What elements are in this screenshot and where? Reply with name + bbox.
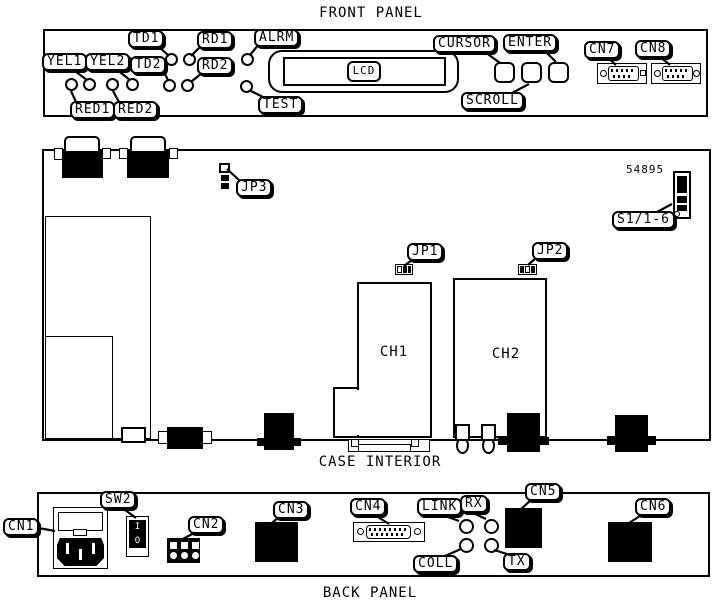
iec-prong-right <box>92 543 95 554</box>
cn2-pin-sq-3 <box>192 542 199 549</box>
cn8-screw-right <box>693 70 700 77</box>
rocker-switch: I O <box>129 520 146 548</box>
red1-led <box>65 78 78 91</box>
capacitor-1-body <box>455 424 470 441</box>
yel1-label: YEL1 <box>42 53 87 71</box>
rd2-label: RD2 <box>197 57 233 75</box>
cn2-pin-sq-1 <box>170 542 177 549</box>
cn2-pin-rd-2 <box>181 552 188 559</box>
cn3-label: CN3 <box>273 501 309 519</box>
ch1-board <box>357 282 432 438</box>
yel2-label: YEL2 <box>85 53 130 71</box>
rd2-led <box>181 79 194 92</box>
cn2-pin-rd-1 <box>170 552 177 559</box>
case-interior-title: CASE INTERIOR <box>280 454 480 470</box>
cn4-pins-bottom <box>371 533 406 536</box>
iec-prong-left <box>66 543 69 554</box>
rocker-off-marking: O <box>135 537 140 546</box>
cn1-label: CN1 <box>3 518 39 536</box>
bottom-connector-small <box>121 427 146 443</box>
cn7-pins-top <box>611 69 636 72</box>
td1-label: TD1 <box>128 30 164 48</box>
bottom-connector-4-body <box>615 415 648 452</box>
cn2-label: CN2 <box>188 516 224 534</box>
capacitor-2-body <box>481 424 496 441</box>
cn8-label: CN8 <box>635 40 671 58</box>
cn5-label: CN5 <box>525 483 561 501</box>
cn7-pins-bottom <box>613 75 633 78</box>
cn8-pins-bottom <box>667 75 687 78</box>
cn2-pin-sq-2 <box>181 542 188 549</box>
red1-label: RED1 <box>70 101 115 119</box>
yel2-led <box>126 78 139 91</box>
jp1-jumper <box>395 264 413 275</box>
lcd-badge: LCD <box>347 61 381 82</box>
sw2-label: SW2 <box>100 491 136 509</box>
power-inner-box <box>45 336 113 439</box>
scroll-button <box>521 62 542 83</box>
td2-led <box>163 79 176 92</box>
yel1-led <box>83 78 96 91</box>
jp1-label: JP1 <box>407 243 443 261</box>
link-led <box>459 519 474 534</box>
ch1-text: CH1 <box>374 344 414 360</box>
jp3-jumper-cap <box>219 163 230 173</box>
cn2-pin-rd-3 <box>192 552 199 559</box>
red2-led <box>106 78 119 91</box>
ch1-edge-connector-inner <box>358 444 411 452</box>
cursor-label: CURSOR <box>433 35 496 53</box>
bottom-connector-3-tab-right <box>540 437 549 445</box>
jp2-cell-closed2 <box>531 266 535 273</box>
front-panel-title: FRONT PANEL <box>271 5 471 21</box>
cn6-label: CN6 <box>635 498 671 516</box>
jp2-cell-open <box>525 266 531 273</box>
ch1-seam-patch <box>356 390 362 435</box>
back-panel-title: BACK PANEL <box>270 585 470 601</box>
dip-switch-label: S1/1-6 <box>612 211 675 229</box>
test-label: TEST <box>258 96 303 114</box>
scroll-label: SCROLL <box>461 92 524 110</box>
tx-led <box>484 538 499 553</box>
bottom-connector-4-tab-right <box>648 436 656 445</box>
jp2-jumper <box>518 264 537 275</box>
rd1-led <box>183 53 196 66</box>
rocker-on-marking: I <box>135 523 140 532</box>
cn4-pins-top <box>369 528 409 531</box>
jp2-cell-closed <box>520 266 524 273</box>
cn7-label: CN7 <box>584 41 620 59</box>
td1-led <box>165 53 178 66</box>
td2-label: TD2 <box>130 56 166 74</box>
bottom-connector-2-body <box>264 413 294 450</box>
coll-label: COLL <box>413 555 458 573</box>
coll-led <box>459 538 474 553</box>
enter-button <box>548 62 569 83</box>
red2-label: RED2 <box>113 101 158 119</box>
rx-label: RX <box>460 495 488 513</box>
rd1-label: RD1 <box>197 31 233 49</box>
bottom-connector-3-body <box>507 413 540 452</box>
bottom-connector-2-tab-left <box>257 438 264 446</box>
cn6-connector <box>608 522 652 562</box>
jp1-cell-closed <box>403 266 406 273</box>
cursor-button <box>494 62 515 83</box>
test-led <box>240 80 253 93</box>
jp2-label: JP2 <box>532 242 568 260</box>
top-connector-1-body <box>62 151 103 178</box>
enter-label: ENTER <box>503 34 557 52</box>
link-label: LINK <box>417 498 462 516</box>
cn4-screw-left <box>357 528 364 535</box>
rx-led <box>484 519 499 534</box>
cn5-connector <box>505 508 542 548</box>
bottom-connector-4-tab-left <box>607 436 615 445</box>
cn3-connector <box>255 522 298 562</box>
jp3-pin-2 <box>221 183 229 189</box>
bottom-connector-3-tab-left <box>498 437 507 445</box>
top-connector-1-tab-right <box>102 148 111 159</box>
jp1-cell-closed2 <box>408 266 411 273</box>
cn8-pins-top <box>665 69 690 72</box>
cn7-screw-left <box>600 70 607 77</box>
bottom-connector-2-tab-right <box>294 438 301 446</box>
dip-switch-segment-3 <box>677 205 687 211</box>
alrm-label: ALRM <box>254 29 299 47</box>
iec-prong-middle <box>79 549 82 560</box>
jp3-pin-1 <box>221 175 229 181</box>
cn4-label: CN4 <box>350 498 386 516</box>
tx-label: TX <box>503 553 531 571</box>
cn8-screw-left <box>654 70 661 77</box>
cn4-screw-right <box>414 528 421 535</box>
cn7-screw-right <box>640 70 646 76</box>
bottom-connector-1-tab-right <box>202 431 212 444</box>
bottom-connector-1-body <box>167 427 203 449</box>
top-connector-2-body <box>127 151 169 178</box>
dip-switch-segment-1 <box>677 176 687 193</box>
fuse-drawer-tab <box>73 529 87 536</box>
ch1-edge-connector-tab-right <box>411 439 419 447</box>
alrm-led <box>241 53 254 66</box>
hardware-diagram: FRONT PANEL CASE INTERIOR BACK PANEL LCD <box>0 0 717 610</box>
jp3-label: JP3 <box>236 179 272 197</box>
dip-switch-segment-2 <box>677 196 687 203</box>
ch2-text: CH2 <box>486 346 526 362</box>
jp1-cell-open <box>397 266 402 273</box>
top-connector-2-tab-right <box>169 148 178 159</box>
part-number-text: 54895 <box>626 163 664 176</box>
